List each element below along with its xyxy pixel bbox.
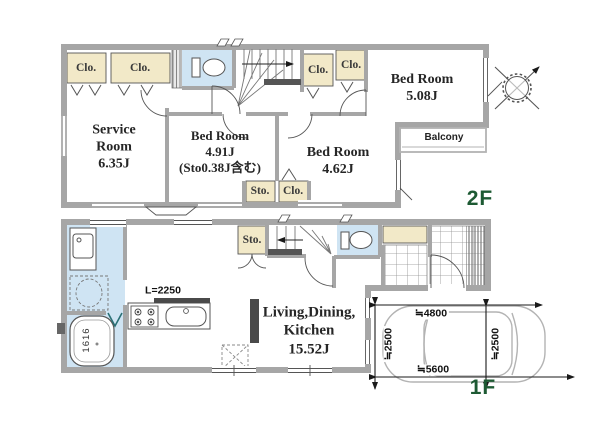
- closet-label: Clo.: [76, 61, 96, 75]
- bedroom-c-label: Bed Room 5.08J: [391, 71, 454, 105]
- toilet-icon-1f: [341, 232, 372, 250]
- closet-label: Clo.: [283, 184, 303, 198]
- closet-label: Clo.: [308, 63, 328, 77]
- porch-stripes: [466, 226, 485, 288]
- dim-4800-label: ≒4800: [413, 308, 449, 319]
- dim-2500-right-label: ≒2500: [490, 326, 501, 362]
- genkan-tiles: [383, 245, 427, 288]
- dim-5600-label: ≒5600: [415, 364, 451, 375]
- stairs-2f: [238, 49, 301, 106]
- kitchen-length-label: L=2250: [143, 285, 183, 296]
- storage-label: Sto.: [251, 184, 270, 198]
- balcony-label: Balcony: [425, 132, 464, 144]
- floor2-label: 2F: [467, 186, 494, 212]
- service-room-label: Service Room 6.35J: [92, 121, 136, 172]
- kitchen-counter: [128, 298, 259, 343]
- shoe-closet: [383, 226, 427, 243]
- floor-plan-canvas: Service Room 6.35J Bed Room 4.91J (Sto0.…: [0, 0, 600, 448]
- duct-hatch: [172, 49, 182, 88]
- stairs-1f: [268, 226, 331, 255]
- dim-2500-left-label: ≒2500: [383, 326, 394, 362]
- bay-window-2f: [146, 207, 196, 215]
- storage-label: Sto.: [243, 233, 262, 247]
- toilet-icon-2f: [192, 58, 225, 77]
- understair-storage-mark: [222, 345, 248, 369]
- compass-icon: [495, 67, 539, 109]
- closet-label: Clo.: [341, 58, 361, 72]
- counter-edge: [154, 298, 210, 303]
- closet-label: Clo.: [130, 61, 150, 75]
- floor1-plan: [57, 215, 574, 389]
- kitchen-end-panel: [250, 299, 259, 343]
- washbasin-icon: [70, 228, 96, 270]
- bedroom-b-label: Bed Room 4.62J: [307, 144, 370, 178]
- bath-size-label: 1616: [81, 327, 93, 352]
- floor1-label: 1F: [470, 375, 497, 401]
- sink-icon: [166, 307, 206, 326]
- ldk-label: Living,Dining, Kitchen 15.52J: [263, 304, 356, 359]
- bedroom-a-label: Bed Room 4.91J (Sto0.38J含む): [179, 128, 261, 176]
- stove-icon: [131, 306, 158, 327]
- car-icon: [383, 306, 545, 382]
